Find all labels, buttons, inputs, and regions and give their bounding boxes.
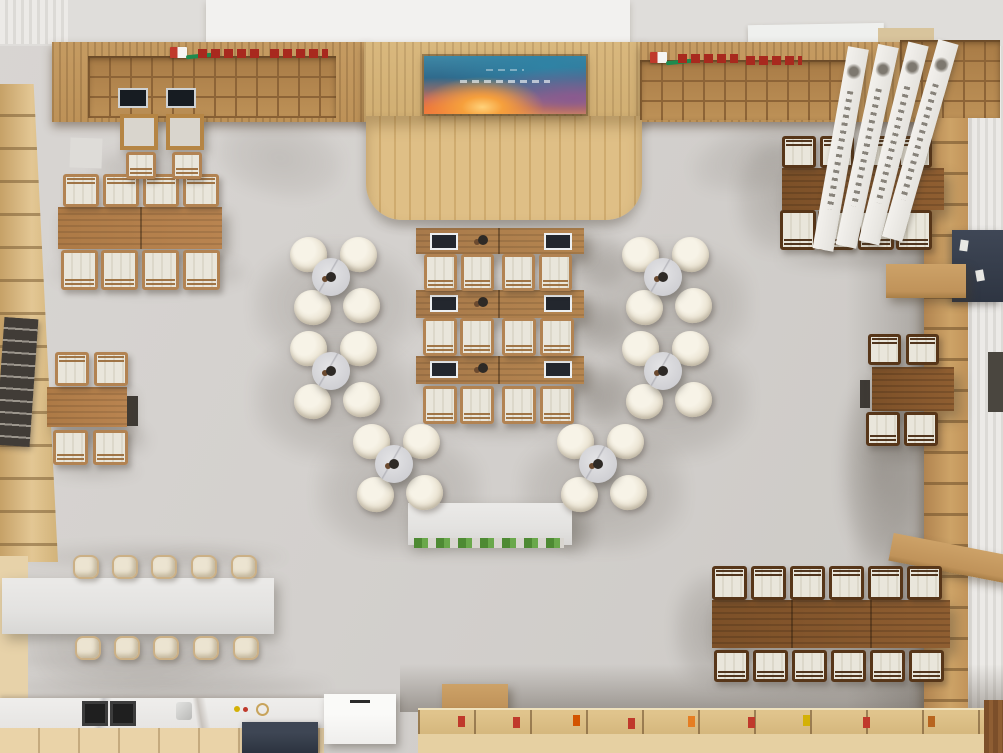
- wood-chair: [183, 250, 220, 290]
- screen-caption-text: [460, 80, 551, 83]
- brand-logo-book-icon: [170, 47, 187, 58]
- banner-character-mark: [932, 55, 950, 74]
- table-seam: [791, 600, 793, 648]
- wood-chair: [866, 412, 900, 446]
- wood-floor-corner-bottom-right: [984, 700, 1003, 753]
- signage-red-calligraphy-right-2: [746, 56, 802, 65]
- wood-chair: [172, 152, 202, 179]
- bar-stool: [231, 555, 257, 579]
- wood-chair: [753, 650, 788, 682]
- wood-chair: [55, 352, 89, 386]
- wood-chair: [423, 386, 457, 424]
- wood-chair: [460, 386, 494, 424]
- wood-chair: [712, 566, 747, 600]
- bar-stool: [73, 555, 99, 579]
- condiment-yellow: [234, 706, 240, 712]
- bar-stool: [75, 636, 101, 660]
- paper-sheet: [975, 269, 985, 281]
- wood-chair: [101, 250, 138, 290]
- dining-table: [47, 387, 127, 427]
- gold-tray: [256, 703, 269, 716]
- wood-chair: [906, 334, 939, 365]
- wood-chair: [93, 430, 128, 465]
- screen-caption-small: [486, 69, 525, 71]
- dining-table: [120, 114, 158, 150]
- lounge-armchair: [673, 380, 715, 420]
- wall-bookshelf-grid-right: [640, 60, 856, 120]
- table-seam: [498, 356, 500, 384]
- signage-red-calligraphy-right-1: [678, 54, 738, 63]
- tablet-device: [544, 295, 572, 312]
- bar-stool: [151, 555, 177, 579]
- bar-stool: [114, 636, 140, 660]
- tablet-device: [430, 361, 458, 378]
- window-frame-right: [988, 352, 1003, 412]
- dining-table: [166, 114, 204, 150]
- bar-stool: [193, 636, 219, 660]
- wall-monitor-2: [166, 88, 196, 108]
- wood-chair: [539, 254, 572, 291]
- wood-chair: [94, 352, 128, 386]
- floor-mat: [69, 137, 102, 168]
- wood-chair: [782, 136, 816, 168]
- wood-chair: [714, 650, 749, 682]
- reading-desk-row: [416, 228, 584, 254]
- kitchen-sink-1: [82, 701, 108, 726]
- teacup: [593, 459, 603, 469]
- tablet-device: [544, 361, 572, 378]
- wood-chair: [423, 318, 457, 356]
- tablet-device: [430, 295, 458, 312]
- low-bookshelf-counter-front: [418, 734, 1003, 753]
- teacup: [478, 297, 488, 307]
- wood-chair: [868, 334, 901, 365]
- teacup: [326, 366, 336, 376]
- wood-chair: [540, 318, 574, 356]
- reading-desk-row: [416, 290, 584, 318]
- teacup: [478, 363, 488, 373]
- wood-chair: [831, 650, 866, 682]
- wood-chair: [63, 174, 99, 207]
- bar-stool: [112, 555, 138, 579]
- projection-screen-sunset-image: [424, 56, 586, 114]
- wood-chair: [907, 566, 942, 600]
- banner-character-mark: [875, 60, 892, 79]
- wood-chair: [829, 566, 864, 600]
- lounge-armchair: [673, 286, 715, 326]
- wood-chair: [868, 566, 903, 600]
- book-spines-red: [458, 716, 465, 727]
- condiment-red: [243, 707, 248, 712]
- lounge-armchair: [341, 380, 383, 420]
- dining-table: [712, 600, 950, 648]
- bar-stool: [153, 636, 179, 660]
- table-seam: [498, 290, 500, 318]
- signage-red-calligraphy-left-1: [198, 49, 262, 58]
- teacup: [658, 272, 668, 282]
- paper-sheet: [959, 239, 968, 251]
- wood-chair: [904, 412, 938, 446]
- table-seam: [498, 228, 500, 254]
- window-top-left: [0, 0, 68, 44]
- tablet-device: [430, 233, 458, 250]
- wood-chair: [870, 650, 905, 682]
- bar-stool: [191, 555, 217, 579]
- low-bookshelf-counter-top: [418, 708, 1003, 736]
- table-seam: [870, 600, 872, 648]
- wood-chair: [53, 430, 88, 465]
- side-cabinet-dark-left: [126, 396, 138, 426]
- teacup: [389, 459, 399, 469]
- wood-chair: [424, 254, 457, 291]
- teacup: [326, 272, 336, 282]
- wood-chair: [780, 210, 816, 250]
- bar-stool: [233, 636, 259, 660]
- wood-chair: [909, 650, 944, 682]
- wood-chair: [126, 152, 156, 179]
- navy-bin: [242, 722, 318, 753]
- wood-chair: [502, 318, 536, 356]
- stage-platform: [366, 116, 642, 220]
- wall-monitor-1: [118, 88, 148, 108]
- faucet: [176, 702, 192, 720]
- machine-slot: [350, 700, 370, 703]
- wall-bookshelf-grid-left: [88, 56, 336, 118]
- lounge-armchair: [608, 473, 650, 513]
- wood-chair: [460, 318, 494, 356]
- ceiling-beam: [206, 0, 630, 46]
- wood-chair: [751, 566, 786, 600]
- dining-table: [58, 207, 222, 249]
- teacup: [478, 235, 488, 245]
- wood-chair: [792, 650, 827, 682]
- wood-chair: [502, 386, 536, 424]
- library-interior-top-view: [0, 0, 1003, 753]
- tablet-device: [544, 233, 572, 250]
- wood-chair: [61, 250, 98, 290]
- wood-chair: [540, 386, 574, 424]
- teacup: [658, 366, 668, 376]
- side-cabinet-dark-right: [860, 380, 870, 408]
- side-counter-right: [886, 264, 966, 298]
- banner-character-mark: [846, 62, 863, 80]
- brand-logo-book-icon-right: [650, 52, 667, 63]
- wood-chair: [142, 250, 179, 290]
- signage-red-calligraphy-left-2: [270, 49, 328, 58]
- wood-chair: [790, 566, 825, 600]
- table-seam: [140, 207, 142, 249]
- reading-desk-row: [416, 356, 584, 384]
- planter-plants: [414, 538, 564, 548]
- communal-bar-table: [2, 578, 274, 634]
- wood-chair: [502, 254, 535, 291]
- banner-character-mark: [903, 58, 920, 77]
- dining-table: [872, 367, 954, 411]
- kitchen-sink-2: [110, 701, 136, 726]
- wood-chair: [461, 254, 494, 291]
- lounge-armchair: [341, 286, 383, 326]
